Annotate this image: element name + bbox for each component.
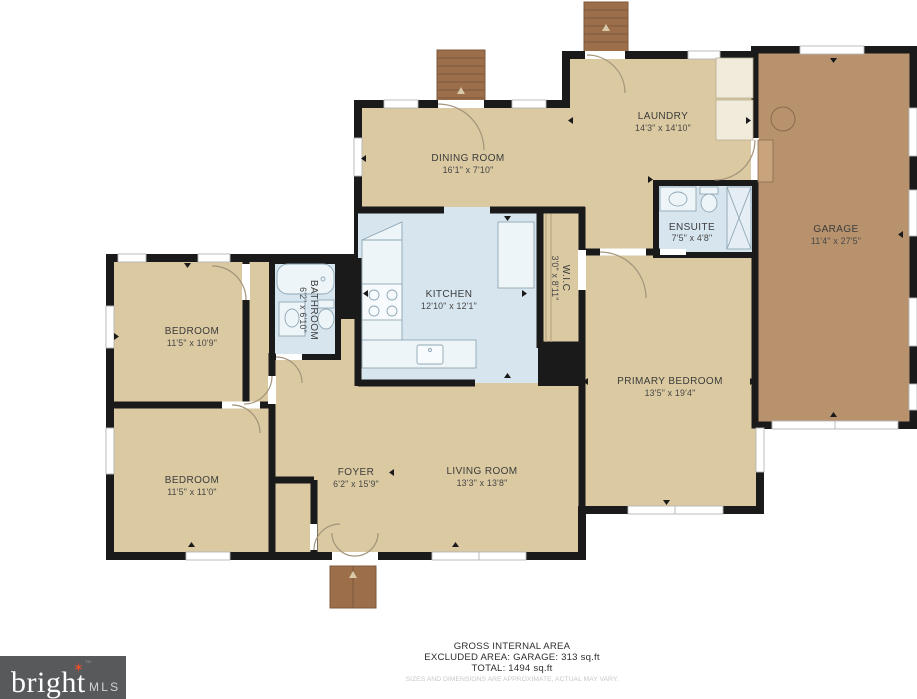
logo-brand-suffix: MLS [89,680,120,694]
room-label-kitchen: KITCHEN [426,289,473,300]
floor-plan-page: DINING ROOM 16'1" x 7'10" LAUNDRY 14'3" … [0,0,917,699]
room-dims-bathroom: 6'2" x 6'10" [298,287,308,333]
star-icon: ✶ [73,661,84,676]
room-dims-bedroom-2: 11'5" x 11'0" [167,487,217,497]
room-dims-primary-bedroom: 13'5" x 19'4" [645,388,696,398]
room-dims-laundry: 14'3" x 14'10" [635,123,691,133]
gross-internal-area-label: GROSS INTERNAL AREA [454,641,571,652]
room-dims-wic: 3'0" x 8'11" [550,255,560,300]
entry-steps-dining [437,50,485,106]
floor-plan-canvas: DINING ROOM 16'1" x 7'10" LAUNDRY 14'3" … [0,0,917,699]
room-label-laundry: LAUNDRY [638,111,688,122]
room-dims-foyer: 6'2" x 15'9" [333,479,379,489]
entry-steps-laundry [584,2,628,55]
entry-steps-foyer [330,566,376,608]
room-dims-living-room: 13'3" x 13'8" [457,478,508,488]
total-area-label: TOTAL: 1494 sq.ft [472,663,553,674]
room-label-wic: W.I.C [560,265,571,291]
room-label-ensuite: ENSUITE [669,222,715,233]
room-label-foyer: FOYER [338,467,374,478]
toilet-icon [700,187,718,194]
room-label-bedroom-1: BEDROOM [165,326,219,337]
brand-logo: bright ✶ TM MLS [0,656,126,699]
room-label-dining: DINING ROOM [431,153,504,164]
room-label-living-room: LIVING ROOM [446,466,517,477]
excluded-area-label: EXCLUDED AREA: GARAGE: 313 sq.ft [424,652,600,663]
room-dims-bedroom-1: 11'5" x 10'9" [167,338,217,348]
room-dims-kitchen: 12'10" x 12'1" [421,301,477,311]
sink-icon [417,345,443,364]
room-dims-dining: 16'1" x 7'10" [443,165,494,175]
toilet-icon [318,300,334,308]
room-dims-ensuite: 7'5" x 4'8" [672,233,713,243]
disclaimer-text: SIZES AND DIMENSIONS ARE APPROXIMATE, AC… [406,676,619,683]
room-dims-garage: 11'4" x 27'5" [811,236,861,246]
trademark-label: TM [85,659,91,664]
room-label-garage: GARAGE [813,224,858,235]
room-label-bedroom-2: BEDROOM [165,475,219,486]
sink-icon [660,187,696,211]
room-label-bathroom: BATHROOM [308,280,319,340]
room-label-primary-bedroom: PRIMARY BEDROOM [617,376,723,387]
